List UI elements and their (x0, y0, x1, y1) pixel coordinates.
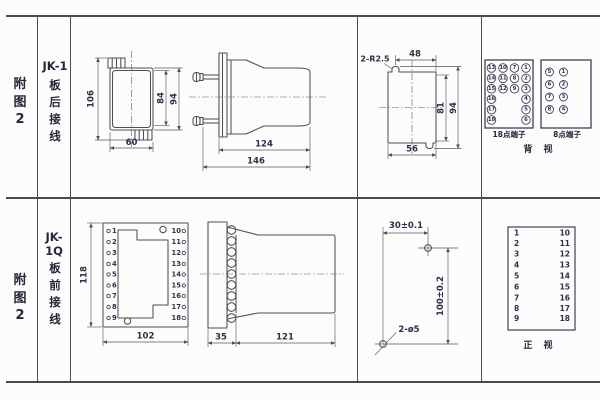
svg-text:6: 6 (548, 82, 552, 88)
svg-text:3: 3 (562, 94, 566, 100)
case-dimensions: 106 84 94 60 (87, 58, 183, 152)
terminal-block-18: 13 14 15 16 17 18 10 11 12 7 8 9 1 2 3 4… (485, 60, 533, 139)
svg-text:2: 2 (514, 239, 519, 248)
svg-text:8: 8 (548, 107, 552, 113)
caption-8pt: 8点端子 (553, 129, 581, 139)
svg-text:1: 1 (112, 227, 117, 235)
dim-notch-radius: 2-R2.5 (360, 55, 390, 64)
svg-text:16: 16 (172, 292, 182, 300)
svg-text:4: 4 (514, 261, 519, 270)
svg-text:5: 5 (112, 271, 117, 279)
model-label-jk1: JK-1 (38, 59, 72, 73)
panel-cutout-drawing: 48 2-R2.5 81 94 56 (358, 45, 475, 170)
svg-text:3: 3 (524, 86, 528, 92)
svg-text:18: 18 (172, 314, 182, 322)
table-border-middle (6, 197, 600, 199)
relay-body-front (200, 222, 344, 328)
figure-label-row2: 附 图 2 (6, 272, 34, 325)
dim-56: 56 (406, 145, 418, 155)
svg-text:2: 2 (112, 238, 117, 246)
svg-text:7: 7 (513, 65, 517, 71)
front-terminal-list: 110 211 312 413 514 615 716 817 918 正 视 (500, 222, 592, 358)
back-view-caption: 背 视 (523, 143, 556, 155)
svg-text:3: 3 (112, 249, 117, 257)
svg-text:4: 4 (112, 260, 117, 268)
table-border-top (6, 15, 600, 17)
svg-text:15: 15 (488, 86, 496, 92)
svg-text:14: 14 (560, 272, 570, 281)
svg-text:8: 8 (513, 75, 517, 81)
mounting-screw-top (193, 73, 219, 82)
svg-text:12: 12 (499, 86, 507, 92)
cutout-outline (379, 60, 444, 154)
svg-text:8: 8 (112, 303, 117, 311)
svg-text:6: 6 (112, 282, 117, 290)
rear-terminal-diagrams: 13 14 15 16 17 18 10 11 12 7 8 9 1 2 3 4… (482, 55, 598, 155)
dim-48: 48 (409, 50, 421, 60)
terminal-list-box: 110 211 312 413 514 615 716 817 918 (508, 227, 575, 330)
dim-121: 121 (276, 333, 294, 343)
wiring-label-front: 板 前 接 线 (39, 260, 71, 328)
mounting-hole-top (160, 226, 166, 232)
svg-text:9: 9 (513, 86, 517, 92)
svg-text:16: 16 (560, 294, 570, 303)
wiring-label-rear: 板 后 接 线 (39, 77, 71, 145)
svg-text:18: 18 (488, 117, 496, 123)
figure-label-row1: 附 图 2 (6, 76, 34, 129)
mounting-hole-bottom (124, 318, 130, 324)
front-view-drawing: 1 2 3 4 5 6 7 8 9 10 11 12 13 14 15 16 1… (78, 218, 208, 356)
drill-plan-drawing: 30±0.1 100±0.2 2-ø5 (362, 218, 472, 366)
svg-text:5: 5 (548, 69, 552, 75)
caption-18pt: 18点端子 (493, 129, 526, 139)
rear-case-drawing: 106 84 94 60 (85, 40, 200, 185)
svg-text:7: 7 (112, 292, 117, 300)
svg-text:14: 14 (172, 271, 182, 279)
mounting-screw-bottom (193, 117, 219, 126)
svg-text:9: 9 (112, 314, 117, 322)
svg-text:4: 4 (562, 107, 566, 113)
svg-text:16: 16 (488, 96, 496, 102)
dim-100: 100±0.2 (436, 276, 446, 316)
svg-text:7: 7 (548, 94, 552, 100)
side-view-front-drawing: 35 121 (200, 218, 350, 358)
model-label-jk1q: JK-1Q (37, 230, 71, 258)
dim-84: 84 (157, 92, 167, 104)
front-view-caption: 正 视 (523, 339, 556, 351)
svg-text:10: 10 (172, 227, 182, 235)
dim-30: 30±0.1 (389, 221, 423, 231)
svg-text:13: 13 (560, 261, 570, 270)
dim-94: 94 (170, 93, 180, 105)
svg-text:2: 2 (524, 75, 528, 81)
svg-text:1: 1 (524, 65, 528, 71)
svg-text:5: 5 (524, 107, 528, 113)
svg-text:11: 11 (172, 238, 182, 246)
dim-60: 60 (126, 138, 138, 148)
svg-text:17: 17 (560, 304, 570, 313)
svg-text:1: 1 (562, 69, 566, 75)
svg-text:13: 13 (172, 260, 182, 268)
svg-text:17: 17 (172, 303, 182, 311)
svg-text:11: 11 (560, 239, 570, 248)
svg-text:18: 18 (560, 314, 570, 323)
table-border-bottom (6, 381, 600, 383)
dim-118: 118 (80, 266, 90, 284)
svg-text:12: 12 (560, 250, 570, 259)
dim-124: 124 (255, 140, 273, 150)
svg-text:17: 17 (488, 107, 496, 113)
dim-94b: 94 (449, 102, 459, 114)
side-view-rear-drawing: 124 146 (188, 45, 328, 175)
svg-text:13: 13 (488, 65, 496, 71)
svg-text:7: 7 (514, 294, 519, 303)
dim-35: 35 (215, 333, 227, 343)
figure-sheet: 附 图 2 JK-1 板 后 接 线 附 图 2 JK-1Q 板 前 接 线 (0, 0, 600, 400)
case-outline (108, 51, 153, 147)
dim-146: 146 (247, 157, 265, 167)
svg-text:10: 10 (560, 229, 570, 238)
svg-text:6: 6 (524, 117, 528, 123)
terminal-block-8: 5 6 7 8 1 2 3 4 8点端子 (541, 60, 591, 139)
svg-text:11: 11 (499, 75, 507, 81)
svg-text:15: 15 (172, 282, 182, 290)
svg-text:10: 10 (499, 65, 507, 71)
svg-text:3: 3 (514, 250, 519, 259)
svg-text:1: 1 (514, 229, 519, 238)
dim-81: 81 (437, 102, 447, 114)
svg-text:15: 15 (560, 283, 570, 292)
relay-body (189, 53, 326, 137)
svg-text:5: 5 (514, 272, 519, 281)
svg-text:4: 4 (524, 96, 528, 102)
dim-106: 106 (87, 90, 97, 108)
svg-text:14: 14 (488, 75, 496, 81)
svg-text:8: 8 (514, 304, 519, 313)
front-terminal-labels: 1 2 3 4 5 6 7 8 9 10 11 12 13 14 15 16 1… (107, 227, 186, 322)
svg-text:12: 12 (172, 249, 182, 257)
drill-dimensions: 30±0.1 100±0.2 2-ø5 (383, 221, 448, 344)
dim-hole-callout: 2-ø5 (398, 325, 419, 335)
svg-text:9: 9 (514, 314, 519, 323)
svg-text:6: 6 (514, 283, 519, 292)
dim-102: 102 (137, 332, 155, 342)
svg-text:2: 2 (562, 82, 566, 88)
